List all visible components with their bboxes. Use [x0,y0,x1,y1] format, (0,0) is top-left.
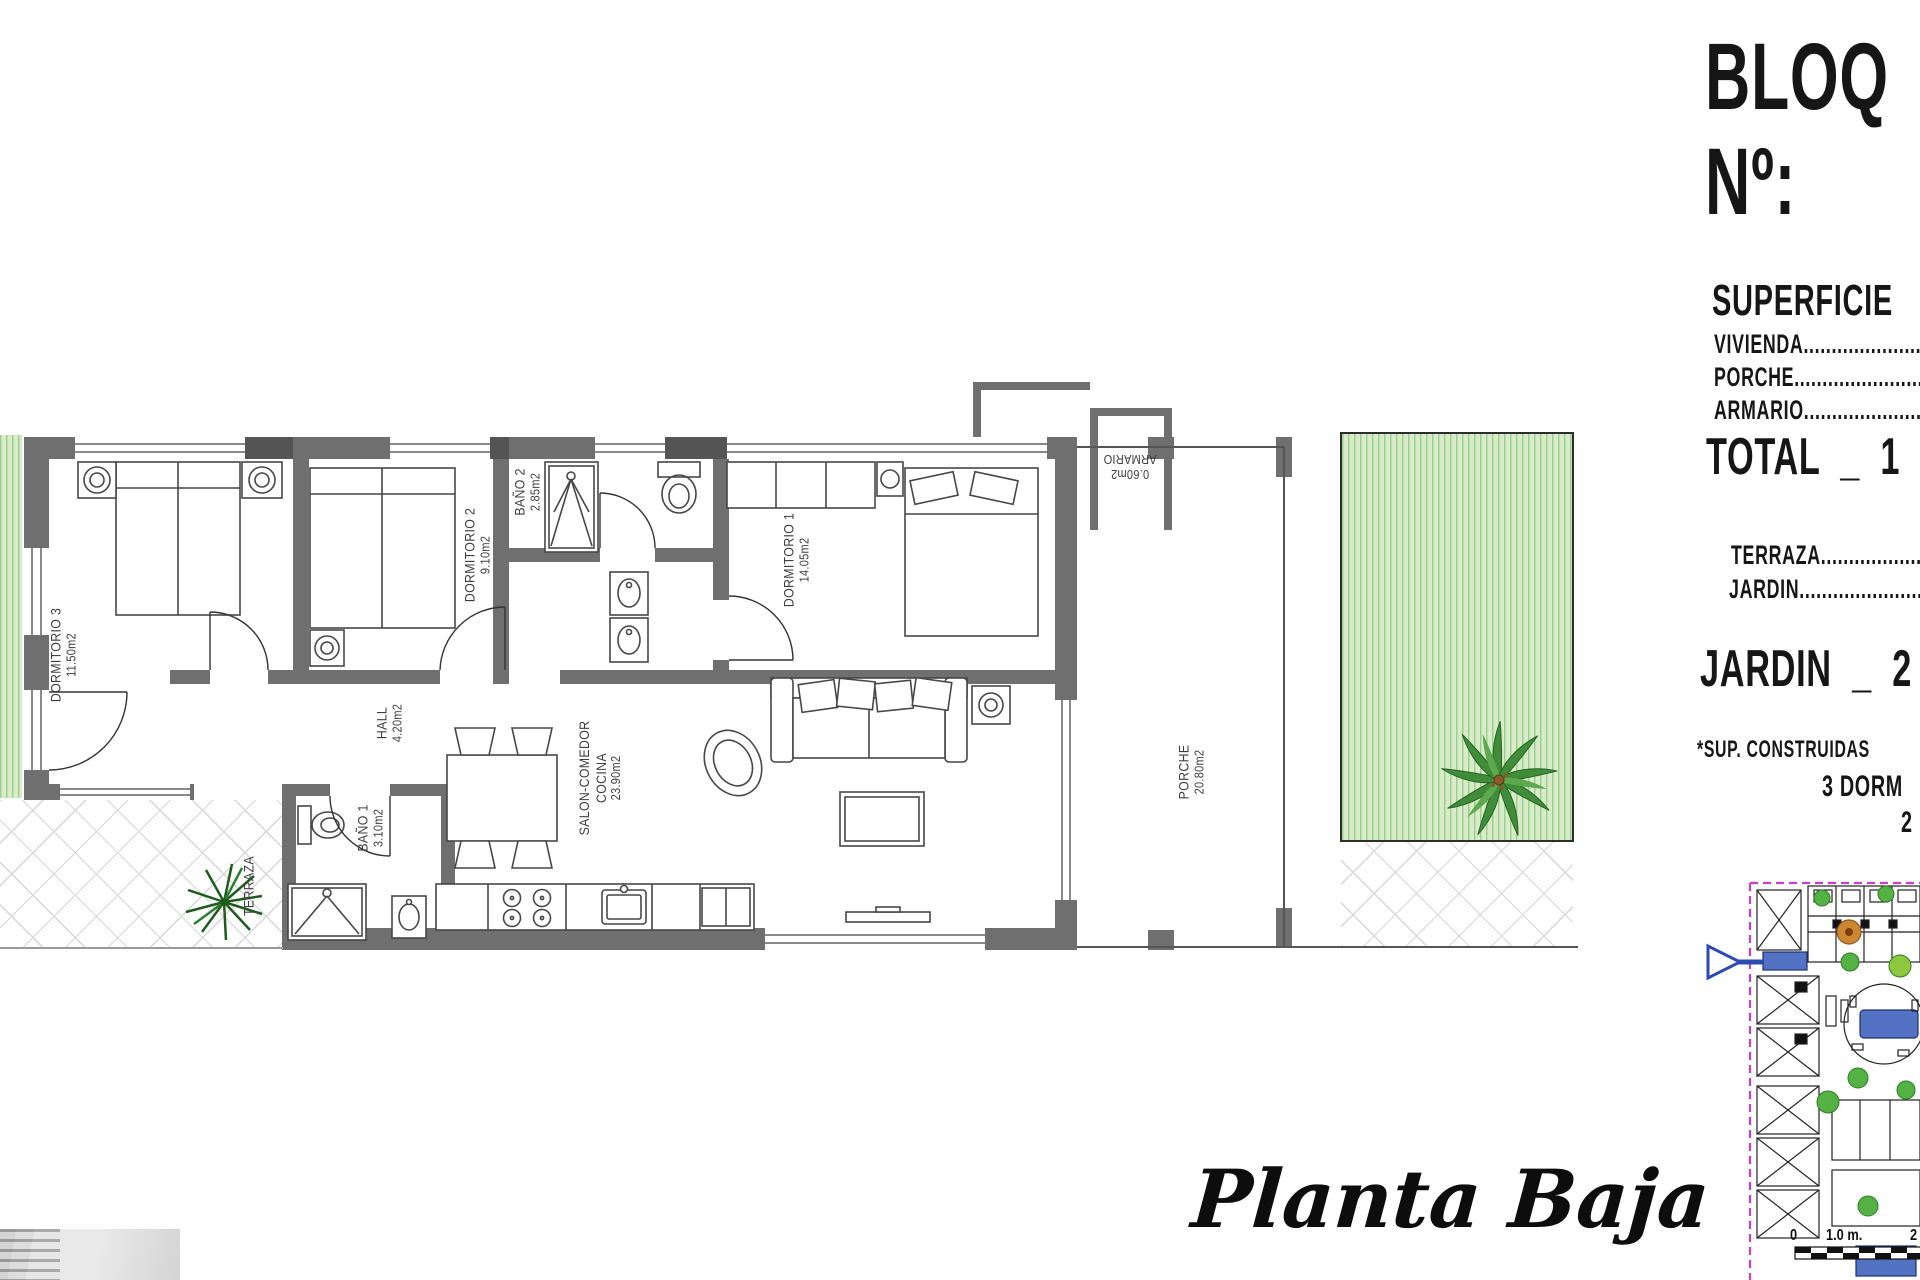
jardin-border [1341,433,1573,841]
tv-bench [846,912,930,922]
banos-note: 2 [1901,807,1913,839]
row-jardin: JARDIN..................................… [1729,575,1920,603]
coffee-table [840,792,924,846]
jardin-total-row: JARDIN _ 2 [1700,642,1912,697]
superficie-heading: SUPERFICIE [1712,278,1893,324]
plan-title-planta-baja: Planta Baja [1189,1152,1713,1246]
scale-two: 2 [1910,1227,1917,1245]
room-label-salon: SALON-COMEDOR COCINA 23.90m2 [576,721,624,836]
total-row: TOTAL _ 1 [1706,430,1900,485]
shower-bano1 [288,884,366,940]
room-label-armario: 0.60m2 ARMARIO [1103,451,1156,481]
dormitorios-note: 3 DORM [1822,771,1903,803]
floor-plan-drawing [0,0,1920,1280]
room-label-dormitorio-2: DORMITORIO 2 9.10m2 [461,508,492,602]
unit-pointer-icon [1708,946,1740,978]
page: { "panel": { "bloque": "BLOQ", "numero":… [0,0,1920,1280]
room-label-porche: PORCHE 20.80m2 [1175,745,1206,800]
site-plan-minimap [1708,883,1920,1280]
chair [693,720,773,805]
row-porche: PORCHE..................................… [1714,363,1920,391]
room-label-dormitorio-3: DORMITORIO 3 11.50m2 [47,608,78,702]
scale-one-meter: 1.0 m. [1826,1227,1862,1245]
wardrobe-dorm1 [727,462,875,508]
row-vivienda: VIVIENDA................................… [1714,330,1920,358]
room-label-terraza: TERRAZA [241,856,258,916]
palm-tree-icon [1441,721,1557,838]
photo-facade-lines [0,1229,60,1280]
highlighted-unit [1763,952,1807,970]
room-label-dormitorio-1: DORMITORIO 1 14.05m2 [780,513,811,607]
numero-title: Nº: [1705,133,1796,233]
sup-construidas-note: *SUP. CONSTRUIDAS [1697,737,1870,762]
photo-fragment [0,1229,180,1280]
toilet-bano1 [298,806,311,844]
scale-bar [1795,1247,1920,1259]
row-terraza: TERRAZA.................................… [1731,541,1920,569]
room-label-hall: HALL 4.20m2 [373,704,404,742]
bloque-title: BLOQ [1705,28,1889,128]
scale-zero: 0 [1790,1227,1797,1245]
room-label-bano-2: BAÑO 2 2.85m2 [511,468,542,515]
row-armario: ARMARIO.................................… [1714,396,1920,424]
dining-table [447,755,557,841]
pool [1860,1010,1918,1038]
furniture [78,462,1038,940]
room-label-bano-1: BAÑO 1 3.10m2 [354,804,385,851]
